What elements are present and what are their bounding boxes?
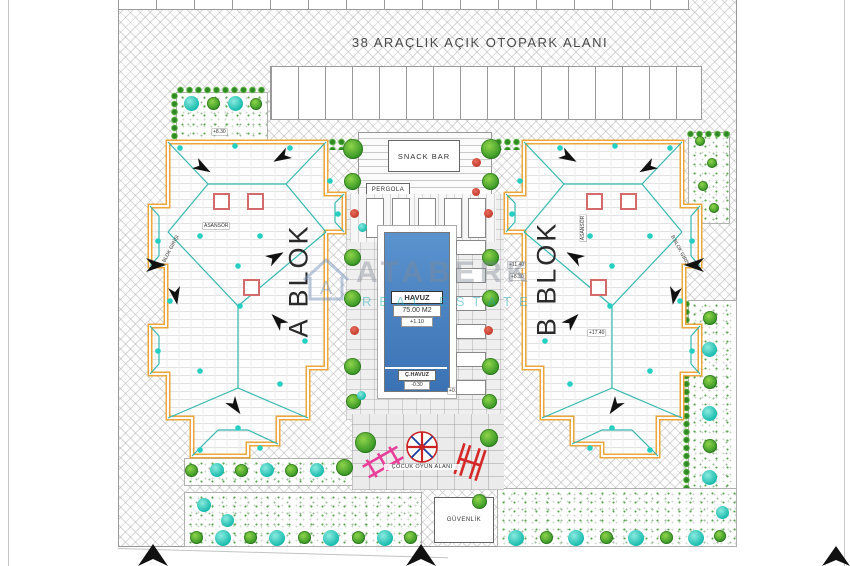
tree-icon	[197, 498, 211, 512]
tree-icon	[358, 223, 367, 232]
bush-icon	[481, 139, 501, 159]
flower-icon	[472, 158, 481, 167]
bush-icon	[660, 531, 673, 544]
elevator-annotation-b: ASANSÖR	[580, 215, 586, 241]
bush-icon	[344, 290, 361, 307]
bush-icon	[250, 98, 262, 110]
pool-elevation: +1.10	[401, 317, 433, 327]
playground-label: ÇOCUK OYUN ALANI	[384, 464, 460, 470]
north-arrow	[822, 546, 850, 566]
kids-pool-elevation: -0.30	[404, 381, 430, 390]
tree-icon	[310, 463, 324, 477]
snack-bar: SNACK BAR	[388, 140, 460, 172]
bush-icon	[207, 97, 220, 110]
north-arrow	[406, 544, 438, 566]
bush-icon	[695, 136, 705, 146]
hedge-top-left	[176, 86, 266, 94]
parking-row-main	[270, 66, 702, 120]
bush-icon	[482, 290, 499, 307]
tree-icon	[377, 530, 393, 546]
tree-icon	[628, 530, 644, 546]
tree-icon	[702, 342, 717, 357]
site-plan-canvas: 38 ARAÇLIK AÇIK OTOPARK ALANI SNACK BAR …	[0, 0, 850, 566]
bush-icon	[244, 531, 257, 544]
bush-icon	[404, 531, 417, 544]
bush-icon	[540, 531, 553, 544]
kids-pool-divider	[385, 367, 447, 369]
tree-icon	[508, 530, 524, 546]
tree-icon	[210, 463, 224, 477]
elevation-annotation: +8.30	[212, 129, 227, 135]
hedge-top-left-side	[170, 92, 178, 140]
tree-icon	[184, 96, 199, 111]
kids-pool-name: Ç.HAVUZ	[398, 370, 436, 381]
bush-icon	[480, 429, 498, 447]
sun-lounger	[456, 268, 486, 283]
pool-area: 75.00 M2	[393, 305, 441, 317]
block-a-building	[140, 136, 352, 464]
elevation-annotation: +11.40	[508, 262, 525, 268]
flower-icon	[484, 209, 493, 218]
bush-icon	[344, 358, 361, 375]
flower-icon	[350, 209, 359, 218]
parking-row-top	[118, 0, 690, 10]
tree-icon	[323, 530, 339, 546]
tree-icon	[568, 530, 584, 546]
bush-icon	[185, 464, 198, 477]
elevation-annotation: +17.40	[588, 330, 605, 336]
page-frame-left	[8, 0, 9, 566]
elevator-annotation-a: ASANSÖR	[203, 223, 229, 229]
tree-icon	[357, 391, 366, 400]
bush-icon	[703, 375, 717, 389]
page-frame-right	[844, 0, 845, 566]
north-arrow	[138, 544, 170, 566]
carousel-icon	[403, 428, 441, 466]
bush-icon	[600, 531, 613, 544]
bush-icon	[703, 311, 717, 325]
block-b-building	[498, 136, 710, 464]
bush-icon	[698, 181, 708, 191]
tree-icon	[702, 406, 717, 421]
bush-icon	[707, 158, 717, 168]
bush-icon	[352, 531, 365, 544]
bush-icon	[472, 494, 487, 509]
tree-icon	[260, 463, 274, 477]
bush-icon	[355, 432, 376, 453]
tree-icon	[716, 506, 729, 519]
block-b-entrance-arrow	[682, 256, 704, 274]
flower-icon	[472, 188, 480, 196]
tree-icon	[269, 530, 285, 546]
parking-title: 38 ARAÇLIK AÇIK OTOPARK ALANI	[280, 35, 680, 50]
flower-icon	[484, 326, 493, 335]
tree-icon	[702, 470, 717, 485]
bush-icon	[482, 173, 499, 190]
bush-icon	[344, 173, 361, 190]
sun-lounger	[468, 198, 486, 238]
flower-icon	[350, 326, 359, 335]
tree-icon	[215, 530, 231, 546]
snack-bar-label: SNACK BAR	[398, 152, 450, 161]
bush-icon	[482, 394, 497, 409]
pergola-label: PERGOLA	[372, 187, 405, 193]
block-a-label: A BLOK	[284, 221, 315, 341]
bush-icon	[336, 459, 353, 476]
swing-icon	[450, 442, 490, 482]
block-a-entrance-arrow	[146, 256, 168, 274]
bush-icon	[703, 439, 717, 453]
tree-icon	[688, 530, 704, 546]
tree-icon	[221, 514, 234, 527]
bush-icon	[482, 249, 499, 266]
bush-icon	[709, 203, 719, 213]
pool-name: HAVUZ	[391, 291, 443, 304]
bush-icon	[344, 249, 361, 266]
bush-icon	[285, 464, 298, 477]
tree-icon	[228, 96, 243, 111]
bush-icon	[235, 464, 248, 477]
bush-icon	[482, 358, 499, 375]
sun-lounger	[456, 324, 486, 339]
bush-icon	[298, 531, 311, 544]
bush-icon	[190, 531, 203, 544]
bush-icon	[714, 530, 726, 542]
sun-lounger	[456, 240, 486, 255]
security-label: GÜVENLİK	[447, 517, 481, 523]
block-b-label: B BLOK	[532, 219, 563, 339]
elevation-annotation: +8.30	[510, 274, 525, 280]
bush-icon	[343, 139, 363, 159]
sun-lounger	[456, 380, 486, 395]
